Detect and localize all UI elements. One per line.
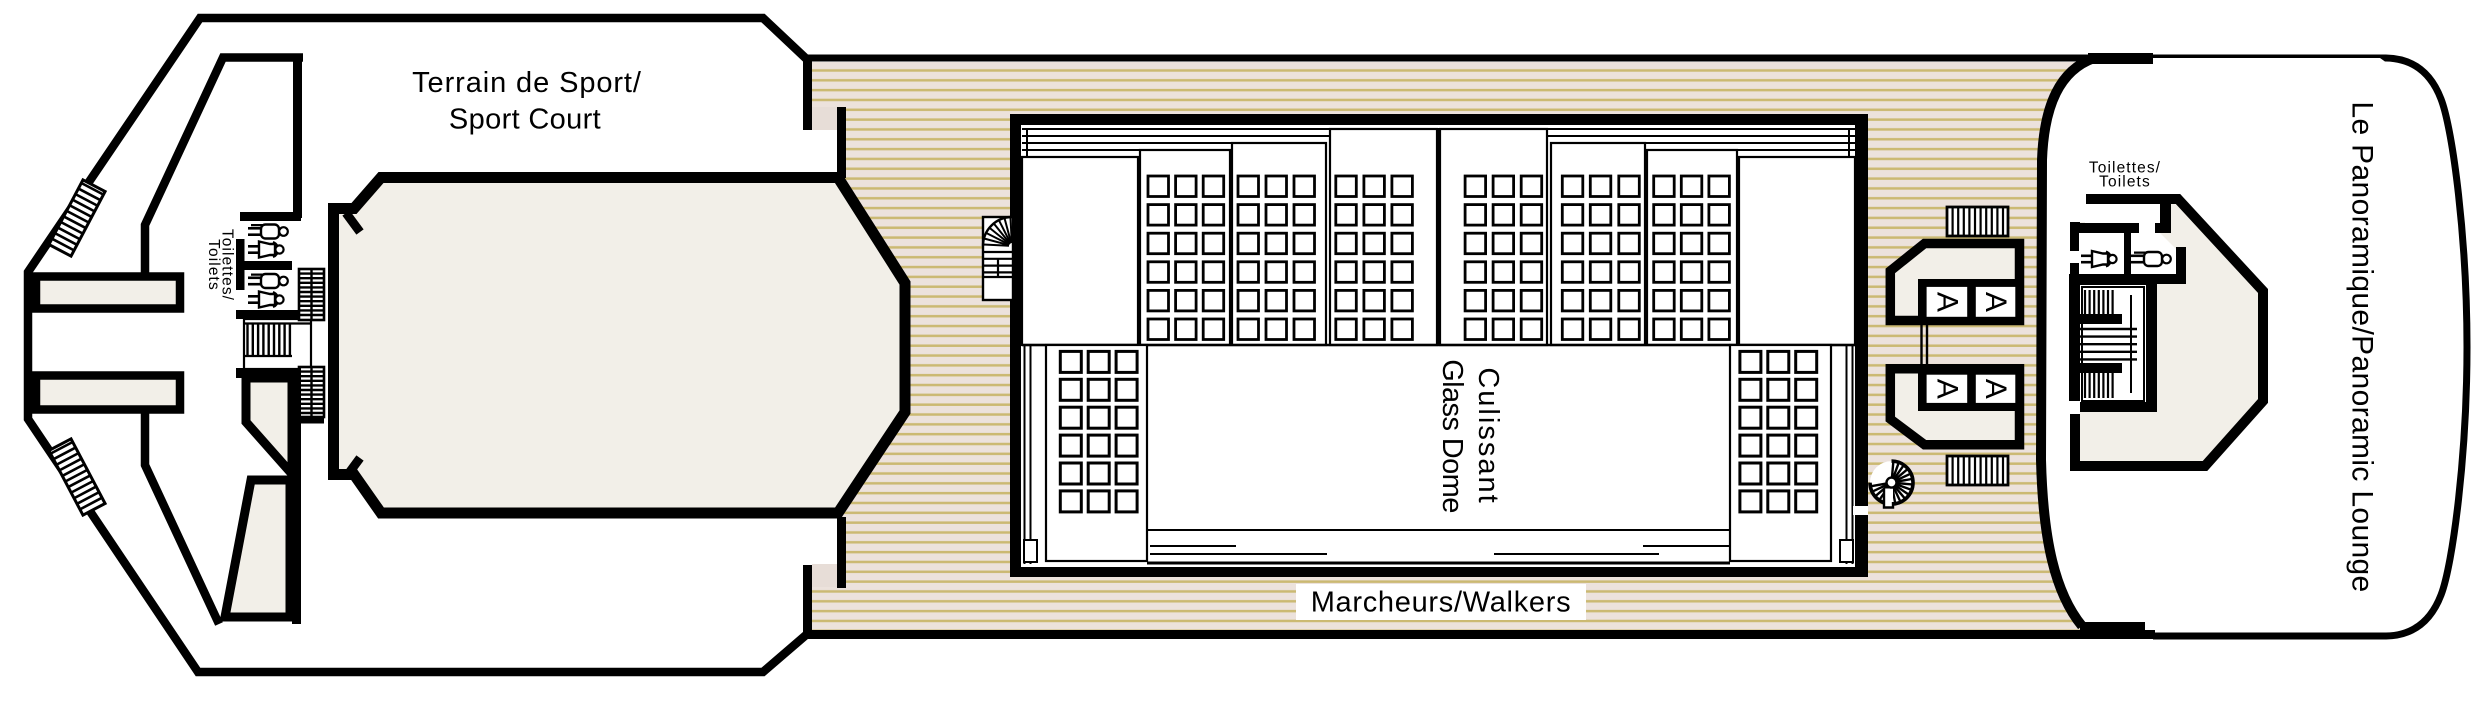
svg-text:A: A xyxy=(1930,379,1963,399)
svg-text:Toilets: Toilets xyxy=(2099,174,2151,191)
svg-text:Sport Court: Sport Court xyxy=(449,104,601,136)
svg-text:Glass Dome: Glass Dome xyxy=(1436,359,1468,513)
svg-text:A: A xyxy=(1979,292,2012,312)
svg-text:Terrain de Sport/: Terrain de Sport/ xyxy=(412,67,642,99)
svg-text:Marcheurs/Walkers: Marcheurs/Walkers xyxy=(1311,587,1572,619)
svg-text:A: A xyxy=(1930,292,1963,312)
svg-text:Le Panoramique/Panoramic Loung: Le Panoramique/Panoramic Lounge xyxy=(2346,101,2379,592)
svg-text:Toilets: Toilets xyxy=(205,239,222,291)
svg-text:Culissant: Culissant xyxy=(1472,367,1504,504)
svg-text:A: A xyxy=(1979,379,2012,399)
